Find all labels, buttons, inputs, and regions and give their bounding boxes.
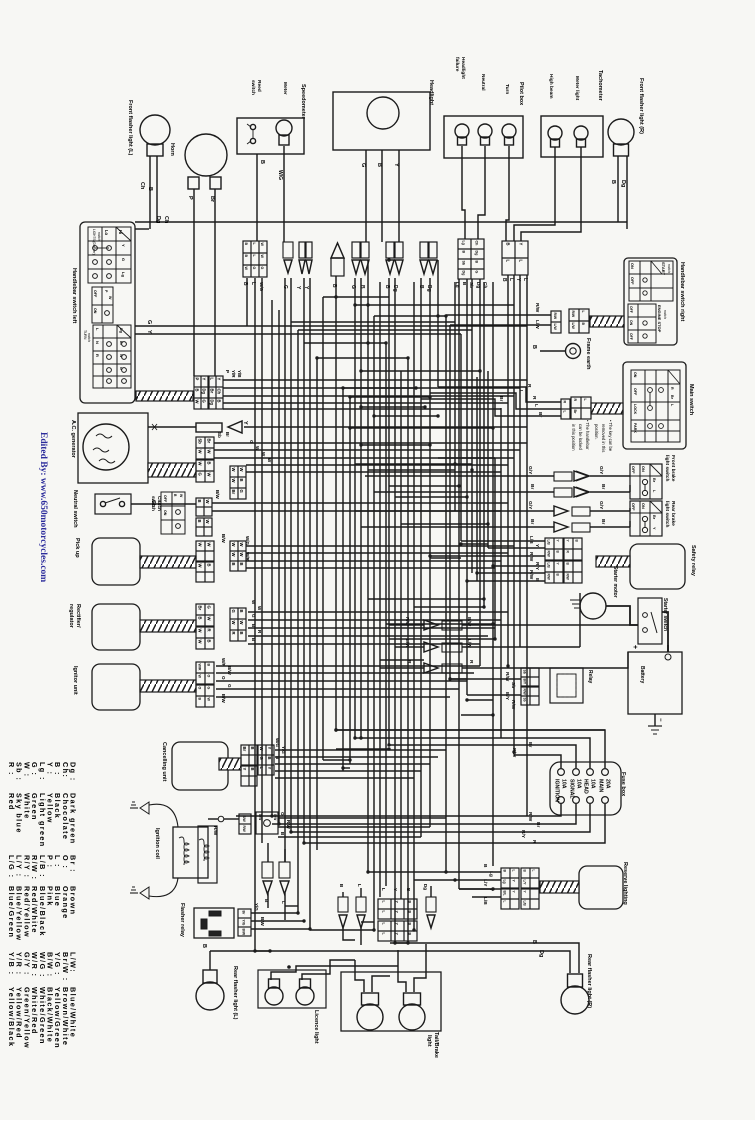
svg-text:Yellow/Black: Yellow/Black [7, 987, 16, 1047]
svg-text:R/W: R/W [212, 826, 218, 836]
svg-text:B/L: B/L [502, 891, 506, 896]
svg-text:W: W [231, 468, 236, 472]
svg-text:B: B [201, 944, 207, 948]
svg-text:R: R [468, 660, 474, 664]
svg-text:Br: Br [209, 389, 214, 394]
svg-text:Ch: Ch [216, 389, 221, 395]
svg-text:Headlight: Headlight [460, 57, 466, 79]
svg-text:W: W [206, 473, 211, 477]
svg-text:R/W: R/W [528, 552, 534, 562]
svg-text:OFF: OFF [630, 277, 634, 285]
svg-text:B: B [231, 563, 236, 566]
svg-text:switch: switch [97, 232, 101, 241]
svg-text:W/G: W/G [277, 170, 283, 180]
svg-text:HEAD: HEAD [583, 779, 589, 794]
svg-text:R/W: R/W [553, 313, 557, 320]
svg-text:R/Y: R/Y [520, 830, 526, 839]
svg-text:W: W [194, 400, 199, 404]
svg-text:10A: 10A [576, 779, 582, 789]
svg-text:O: O [197, 687, 201, 690]
svg-text:Frame earth: Frame earth [585, 338, 591, 370]
svg-text:R: R [531, 840, 537, 844]
svg-text:W: W [239, 468, 244, 472]
svg-text:Dg: Dg [209, 400, 214, 406]
svg-text:regulator: regulator [68, 604, 74, 629]
svg-text:L/B: L/B [528, 536, 534, 544]
svg-text:Ch: Ch [139, 182, 145, 190]
svg-text:R: R [206, 629, 211, 632]
svg-text:Main switch: Main switch [688, 384, 694, 416]
svg-text:B: B [239, 563, 244, 566]
svg-text:R/W: R/W [286, 820, 291, 830]
svg-text:Y: Y [216, 378, 221, 381]
svg-text:B: B [206, 564, 211, 567]
svg-text:L: L [508, 278, 514, 281]
svg-text:G: G [197, 473, 202, 476]
svg-text:Br: Br [529, 519, 535, 524]
svg-text:Sb: Sb [510, 682, 516, 688]
svg-text:Edited By: www.650motorcycles.: Edited By: www.650motorcycles.com [38, 432, 48, 582]
svg-text:Neutral: Neutral [480, 74, 486, 91]
svg-text:Br: Br [670, 395, 674, 400]
svg-text:Dg: Dg [538, 950, 544, 957]
svg-text:Red: Red [7, 793, 16, 811]
svg-text:L: L [533, 404, 539, 407]
svg-text:light switch: light switch [664, 455, 670, 481]
svg-text:switch: switch [87, 333, 91, 342]
svg-text:B: B [239, 632, 244, 635]
svg-text:B: B [474, 261, 478, 264]
svg-text:Speedometer: Speedometer [300, 84, 306, 120]
svg-text:Front flasher light (R): Front flasher light (R) [638, 78, 644, 134]
svg-text:Br: Br [527, 742, 533, 747]
svg-text:ON: ON [633, 372, 637, 378]
svg-text:Horn: Horn [169, 143, 175, 156]
svg-text:R/W: R/W [522, 689, 526, 695]
svg-text:W: W [260, 243, 264, 247]
svg-text:B: B [531, 940, 537, 944]
svg-text:W/G: W/G [245, 536, 250, 545]
svg-text:W: W [206, 617, 211, 621]
svg-text:SIGNAL: SIGNAL [569, 779, 575, 799]
svg-text:B/W: B/W [221, 534, 226, 544]
svg-text:Lg: Lg [461, 241, 465, 245]
svg-text:R: R [95, 354, 100, 357]
svg-text:OFF: OFF [93, 290, 97, 298]
svg-text:B: B [194, 389, 199, 392]
svg-text:B: B [197, 500, 202, 503]
svg-text:B: B [239, 479, 244, 482]
svg-text:Meter: Meter [282, 82, 288, 95]
svg-text:ON: ON [641, 466, 645, 472]
svg-text:in this position: in this position [571, 424, 576, 451]
svg-text:P: P [187, 196, 193, 200]
svg-text:G/Y: G/Y [527, 466, 533, 475]
svg-text:L: L [505, 260, 510, 263]
svg-text:R/W: R/W [571, 311, 575, 318]
svg-text:R: R [670, 387, 674, 390]
svg-text:Relay: Relay [587, 670, 593, 684]
svg-text:Pick up: Pick up [74, 538, 80, 558]
svg-text:W: W [197, 462, 202, 466]
svg-text:Br: Br [209, 196, 215, 203]
svg-text:R/W: R/W [528, 570, 534, 580]
svg-text:Cancelling unit: Cancelling unit [161, 742, 167, 782]
svg-text:• The handlebar: • The handlebar [585, 420, 590, 450]
svg-text:Y: Y [242, 421, 248, 425]
svg-text:B: B [531, 345, 537, 349]
svg-text:B: B [244, 243, 248, 246]
svg-text:B: B [376, 163, 382, 167]
svg-text:G: G [360, 163, 366, 167]
svg-text:• The key can be: • The key can be [608, 420, 613, 452]
svg-text:Tachometer: Tachometer [597, 70, 603, 102]
svg-text:Ch: Ch [474, 241, 478, 246]
svg-text:TURN: TURN [83, 330, 87, 340]
svg-text:Y: Y [201, 378, 206, 381]
svg-text:LOCK: LOCK [633, 404, 637, 415]
svg-text:R/W: R/W [527, 812, 533, 822]
svg-text:Hi: Hi [118, 230, 123, 234]
svg-text:Y: Y [267, 747, 272, 750]
svg-text:ON: ON [630, 263, 634, 269]
svg-text:Br: Br [231, 490, 236, 495]
svg-text:Handlebar switch right: Handlebar switch right [679, 262, 685, 321]
svg-text:R/W: R/W [546, 551, 550, 557]
svg-text:R :: R : [7, 762, 16, 776]
svg-text:W/R: W/R [197, 664, 201, 671]
svg-text:B: B [267, 757, 272, 760]
svg-text:G: G [201, 400, 206, 403]
svg-text:OFF: OFF [633, 388, 637, 396]
svg-text:B: B [482, 864, 488, 868]
svg-text:Br: Br [652, 515, 656, 520]
svg-text:Front brake: Front brake [670, 455, 676, 482]
svg-text:W: W [197, 450, 202, 454]
svg-text:W: W [197, 675, 201, 679]
svg-text:B/W: B/W [241, 929, 245, 936]
svg-text:B: B [206, 640, 211, 643]
svg-text:−: − [657, 718, 663, 722]
svg-text:B: B [216, 400, 221, 403]
svg-text:Rear flasher light (L): Rear flasher light (L) [232, 966, 238, 1020]
svg-text:B: B [206, 462, 211, 465]
svg-text:B: B [501, 278, 507, 282]
svg-text:B/W: B/W [260, 917, 265, 927]
svg-text:W: W [206, 450, 211, 454]
svg-text:IGNITION: IGNITION [554, 779, 560, 802]
svg-text:L: L [531, 870, 535, 872]
svg-text:B: B [505, 243, 510, 246]
svg-text:W: W [197, 543, 202, 547]
svg-text:switch: switch [663, 310, 667, 319]
svg-text:+: + [631, 645, 638, 649]
svg-text:Br: Br [600, 519, 606, 524]
svg-text:L: L [209, 378, 214, 381]
svg-text:G/Y: G/Y [598, 501, 604, 510]
svg-text:Handlebar switch left: Handlebar switch left [71, 268, 77, 323]
svg-text:B: B [206, 664, 210, 667]
svg-text:Dg: Dg [119, 328, 123, 333]
svg-text:W: W [197, 564, 202, 568]
svg-text:removed in this: removed in this [601, 424, 606, 452]
svg-text:High beam: High beam [548, 74, 554, 99]
svg-text:Y: Y [518, 243, 523, 246]
svg-text:Battery: Battery [639, 666, 645, 683]
svg-text:R: R [231, 632, 236, 635]
svg-text:MAIN: MAIN [598, 779, 604, 793]
svg-text:L/B: L/B [482, 897, 488, 905]
svg-text:Flasher relay: Flasher relay [179, 903, 185, 938]
svg-text:Lg: Lg [121, 272, 126, 277]
svg-text:Y: Y [121, 244, 126, 247]
svg-text:L/Y: L/Y [522, 880, 526, 886]
svg-text:B: B [147, 187, 153, 191]
svg-text:switch: switch [250, 80, 256, 95]
svg-text:W: W [239, 553, 244, 557]
svg-text:W: W [206, 698, 210, 702]
svg-text:Br: Br [498, 396, 504, 401]
svg-text:R/W: R/W [546, 574, 550, 580]
svg-text:L/W: L/W [553, 324, 557, 331]
svg-text:W: W [260, 255, 264, 259]
svg-text:G: G [146, 320, 152, 324]
svg-text:Br: Br [652, 478, 656, 483]
svg-text:Dg: Dg [461, 271, 465, 276]
svg-text:O: O [280, 812, 285, 816]
svg-text:R/W: R/W [565, 574, 569, 580]
svg-text:OFF: OFF [629, 333, 633, 340]
svg-text:Y: Y [242, 768, 247, 771]
svg-text:Y: Y [146, 330, 152, 334]
svg-text:W: W [231, 553, 236, 557]
svg-text:Y/G: Y/G [241, 920, 245, 926]
svg-text:L/B: L/B [546, 540, 550, 546]
svg-text:B: B [250, 747, 255, 750]
svg-text:G: G [260, 267, 264, 270]
svg-text:Br: Br [600, 484, 606, 489]
svg-text:G: G [227, 684, 232, 688]
svg-text:Y/R: Y/R [231, 370, 236, 378]
svg-text:failure: failure [454, 57, 460, 72]
svg-text:ON: ON [93, 308, 97, 314]
svg-text:Br: Br [225, 432, 230, 437]
svg-text:Y/B: Y/B [237, 370, 242, 378]
svg-text:Dg: Dg [620, 180, 626, 187]
svg-text:G/Y: G/Y [527, 501, 533, 510]
svg-text:G: G [249, 440, 254, 444]
svg-text:G: G [121, 258, 126, 261]
svg-text:G: G [474, 271, 478, 274]
svg-text:Sb: Sb [461, 261, 465, 266]
svg-text:L: L [581, 311, 585, 313]
svg-text:Lo: Lo [104, 230, 109, 236]
svg-text:Licence light: Licence light [313, 1010, 319, 1044]
svg-text:Br: Br [535, 822, 541, 827]
svg-text:Starter motor: Starter motor [612, 566, 618, 598]
svg-text:W: W [244, 267, 248, 271]
svg-text:P: P [225, 370, 230, 373]
svg-text:Dg: Dg [155, 216, 161, 223]
svg-text:10A: 10A [590, 779, 596, 789]
svg-text:Meter light: Meter light [574, 76, 580, 101]
svg-text:W: W [239, 543, 244, 547]
svg-text:B/W: B/W [215, 490, 220, 500]
svg-text:START: START [661, 262, 666, 276]
svg-text:light: light [426, 1035, 432, 1047]
svg-text:L: L [381, 888, 386, 891]
svg-text:G: G [252, 267, 256, 270]
svg-text:Br: Br [529, 484, 535, 489]
svg-text:Rear brake: Rear brake [670, 501, 676, 526]
svg-text:Ignition coil: Ignition coil [154, 828, 160, 859]
svg-text:W: W [197, 629, 202, 633]
svg-text:W: W [205, 520, 210, 524]
svg-text:Dg: Dg [423, 884, 428, 890]
svg-text:Br: Br [573, 410, 577, 415]
svg-text:W: W [205, 500, 210, 504]
svg-text:B: B [244, 255, 248, 258]
svg-text:Front flasher light (L): Front flasher light (L) [127, 100, 133, 155]
svg-text:Tail/Brake: Tail/Brake [433, 1032, 439, 1058]
svg-text:ENGINE STOP: ENGINE STOP [657, 305, 662, 333]
svg-text:OFF: OFF [629, 306, 633, 313]
svg-text:R/W: R/W [510, 700, 516, 710]
svg-text:Sb: Sb [522, 670, 526, 674]
svg-text:L: L [518, 260, 523, 263]
svg-text:Y: Y [267, 767, 272, 770]
svg-text:B/W: B/W [242, 816, 246, 822]
svg-text:ON: ON [163, 510, 167, 516]
svg-text:B: B [610, 180, 616, 184]
svg-text:B: B [239, 610, 244, 613]
svg-text:OFF: OFF [631, 466, 635, 474]
svg-text:N: N [95, 341, 100, 344]
svg-text:Blue/Green: Blue/Green [7, 886, 16, 938]
svg-text:B/W: B/W [227, 666, 232, 676]
svg-text:switch: switch [667, 264, 671, 273]
svg-text:can be locked: can be locked [578, 424, 583, 451]
svg-text:W: W [231, 543, 236, 547]
svg-text:B/W: B/W [273, 814, 277, 820]
svg-text:O: O [206, 675, 210, 678]
svg-text:ON: ON [629, 320, 633, 326]
svg-text:Ch: Ch [163, 216, 169, 224]
svg-text:L/B: L/B [522, 901, 526, 907]
svg-text:O: O [221, 676, 226, 680]
svg-text:A.C. generator: A.C. generator [70, 420, 76, 459]
svg-text:Ignitor unit: Ignitor unit [72, 666, 78, 695]
svg-text:Y: Y [393, 163, 399, 167]
svg-text:Lg: Lg [502, 880, 506, 884]
svg-text:W: W [197, 640, 202, 644]
svg-text:W: W [231, 479, 236, 483]
svg-text:B: B [197, 617, 202, 620]
svg-text:L: L [502, 901, 506, 903]
svg-text:G/Y: G/Y [598, 466, 604, 475]
svg-text:10A: 10A [561, 779, 567, 789]
svg-text:B/Y: B/Y [504, 692, 510, 701]
svg-text:B: B [197, 698, 201, 701]
svg-text:B/Y: B/Y [522, 679, 526, 685]
svg-text:Br: Br [241, 911, 245, 915]
svg-text:Pilot box: Pilot box [518, 82, 524, 106]
svg-text:switch: switch [150, 496, 156, 511]
svg-text:P: P [194, 378, 199, 381]
svg-text:R: R [573, 399, 577, 402]
svg-text:W: W [239, 621, 244, 625]
svg-text:Br: Br [197, 606, 202, 611]
svg-text:R/W: R/W [504, 672, 510, 682]
svg-text:B: B [461, 251, 465, 254]
svg-text:L/B: L/B [546, 563, 550, 569]
svg-text:Turn: Turn [504, 84, 510, 94]
svg-text:R: R [531, 396, 537, 400]
svg-text:R: R [562, 401, 566, 404]
svg-text:L: L [511, 870, 515, 872]
svg-text:Y/B :: Y/B : [7, 952, 16, 975]
svg-text:B: B [197, 520, 202, 523]
svg-text:Br: Br [206, 439, 211, 444]
svg-text:Dg: Dg [426, 285, 432, 292]
svg-text:G: G [239, 490, 244, 493]
svg-text:B: B [259, 160, 265, 164]
svg-text:Neutral switch: Neutral switch [72, 490, 78, 528]
svg-text:G: G [206, 687, 210, 690]
svg-text:Br: Br [242, 747, 247, 752]
svg-text:G: G [231, 610, 236, 613]
svg-text:Sb: Sb [197, 439, 202, 445]
svg-text:R/W: R/W [242, 826, 246, 832]
svg-text:L/G :: L/G : [7, 855, 16, 878]
svg-text:L/W: L/W [571, 323, 575, 330]
svg-text:position.: position. [594, 424, 599, 440]
svg-text:ON: ON [641, 503, 645, 509]
svg-text:W: W [108, 296, 112, 300]
svg-text:Dg: Dg [201, 389, 206, 395]
svg-text:Sb: Sb [522, 698, 526, 702]
svg-text:OFF: OFF [631, 503, 635, 511]
svg-text:20A: 20A [605, 779, 611, 789]
svg-text:W: W [206, 543, 211, 547]
svg-text:OFF: OFF [163, 495, 167, 503]
svg-text:G: G [206, 606, 211, 609]
svg-text:Dg: Dg [474, 251, 478, 256]
svg-text:B: B [359, 285, 365, 289]
svg-text:Rectifier/: Rectifier/ [75, 604, 81, 628]
svg-text:W: W [231, 621, 236, 625]
svg-text:R/W: R/W [534, 303, 540, 313]
svg-text:PARK: PARK [633, 423, 637, 433]
svg-text:Reed: Reed [256, 80, 262, 92]
svg-text:B: B [250, 768, 255, 771]
svg-text:L: L [518, 390, 524, 393]
svg-text:L: L [357, 884, 362, 887]
svg-text:Safety relay: Safety relay [690, 545, 696, 577]
svg-text:Sb: Sb [217, 432, 222, 438]
svg-text:B/W: B/W [221, 694, 226, 704]
svg-text:light switch: light switch [664, 501, 670, 527]
